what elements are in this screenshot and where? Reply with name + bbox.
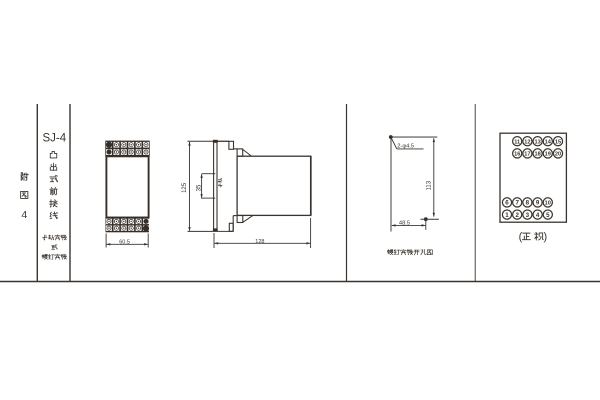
svg-text:15: 15 [555, 139, 561, 145]
svg-text:16: 16 [514, 152, 520, 158]
svg-text:1: 1 [505, 212, 509, 219]
svg-text:14: 14 [545, 139, 552, 145]
svg-text:9: 9 [536, 200, 540, 207]
svg-text:2-φ4.5: 2-φ4.5 [397, 144, 414, 150]
svg-text:125: 125 [182, 182, 188, 193]
svg-text:113: 113 [427, 180, 433, 190]
svg-text:(: ( [519, 231, 523, 243]
svg-text:3: 3 [526, 212, 530, 219]
svg-text:6: 6 [505, 200, 509, 207]
svg-text:7: 7 [515, 200, 519, 207]
svg-text:12: 12 [524, 139, 530, 145]
svg-text:128: 128 [255, 239, 264, 245]
svg-text:8: 8 [526, 200, 530, 207]
svg-text:11: 11 [514, 139, 520, 145]
svg-text:20: 20 [555, 152, 561, 158]
svg-text:19: 19 [545, 152, 551, 158]
svg-text:18: 18 [534, 152, 540, 158]
svg-text:35: 35 [196, 184, 202, 191]
svg-text:10: 10 [545, 201, 551, 207]
svg-text:): ) [544, 231, 548, 243]
svg-text:2: 2 [515, 212, 519, 219]
svg-text:5: 5 [546, 212, 550, 219]
svg-text:4: 4 [21, 209, 27, 221]
svg-text:48.5: 48.5 [399, 220, 410, 226]
svg-text:SJ-4: SJ-4 [42, 132, 66, 144]
svg-text:4: 4 [536, 212, 540, 219]
svg-text:13: 13 [534, 139, 540, 145]
svg-text:17: 17 [524, 152, 530, 158]
svg-text:60.5: 60.5 [119, 240, 130, 246]
